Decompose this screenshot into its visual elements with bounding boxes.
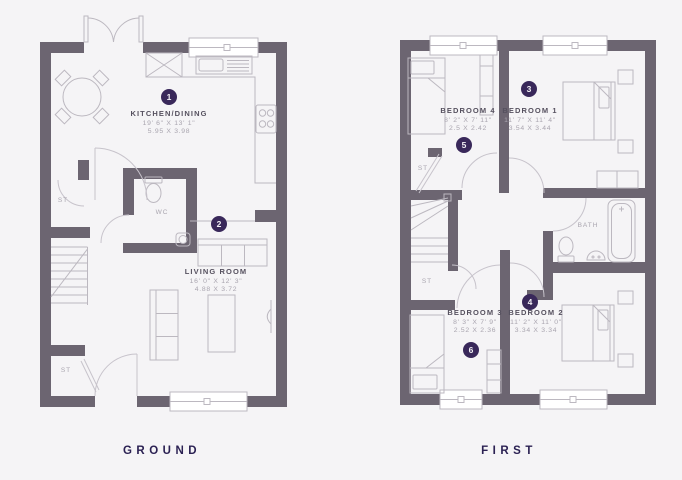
first-stairs-icon bbox=[411, 194, 451, 262]
room-number-kitchen: 1 bbox=[161, 89, 177, 105]
storage-landing-door bbox=[419, 156, 442, 193]
bedroom4-name: BEDROOM 4 bbox=[398, 106, 538, 115]
french-doors-icon bbox=[84, 16, 143, 42]
first-floor-title: FIRST bbox=[409, 445, 609, 457]
wc-door bbox=[101, 215, 129, 243]
storage-entry-door bbox=[81, 361, 96, 392]
room-number-bedroom1: 3 bbox=[521, 81, 537, 97]
storage-entry-label: ST bbox=[44, 367, 88, 374]
bedroom1-door bbox=[509, 158, 544, 193]
room-number-living: 2 bbox=[211, 216, 227, 232]
wc-label: WC bbox=[140, 209, 184, 216]
bedroom3-name: BEDROOM 3 bbox=[405, 308, 545, 317]
storage-landing-label: ST bbox=[401, 165, 445, 172]
living-room-metric: 4.88 X 3.72 bbox=[146, 286, 286, 293]
sofa-icon bbox=[198, 239, 267, 266]
first-floor-plan bbox=[398, 8, 660, 416]
hob-icon bbox=[256, 105, 276, 133]
wardrobe-icon bbox=[487, 350, 501, 393]
bedside-table-icon bbox=[618, 140, 633, 153]
coffee-table-icon bbox=[208, 295, 235, 352]
bath-label: BATH bbox=[566, 222, 610, 229]
bedroom4-door bbox=[462, 153, 497, 188]
storage-stairs-label: ST bbox=[405, 278, 449, 285]
stairs-icon bbox=[51, 247, 88, 305]
bedroom3-metric: 2.52 X 2.36 bbox=[405, 327, 545, 334]
toilet-icon bbox=[559, 237, 573, 255]
bedroom3-imperial: 8' 3" X 7' 9" bbox=[405, 319, 545, 326]
storage-hall-label: ST bbox=[41, 197, 85, 204]
kitchen-dining-name: KITCHEN/DINING bbox=[99, 109, 239, 118]
bedside-table-icon bbox=[618, 70, 633, 84]
ground-floor-title: GROUND bbox=[62, 445, 262, 457]
bedroom3-label: BEDROOM 3 8' 3" X 7' 9" 2.52 X 2.36 bbox=[405, 308, 545, 334]
bedside-table-icon bbox=[618, 291, 633, 304]
living-room-imperial: 16' 0" X 12' 3" bbox=[146, 278, 286, 285]
bedroom3-door bbox=[457, 265, 500, 308]
living-furniture bbox=[150, 239, 271, 360]
bedside-table-icon bbox=[618, 354, 633, 367]
bedroom4-imperial: 8' 2" X 7' 11" bbox=[398, 117, 538, 124]
living-room-name: LIVING ROOM bbox=[146, 267, 286, 276]
kitchen-dining-metric: 5.95 X 3.98 bbox=[99, 128, 239, 135]
floorplan-canvas: 1 KITCHEN/DINING 19' 6" X 13' 1" 5.95 X … bbox=[0, 0, 682, 480]
bath-fixtures bbox=[558, 200, 635, 262]
room-number-bedroom4: 5 bbox=[456, 137, 472, 153]
bedroom4-metric: 2.5 X 2.42 bbox=[398, 125, 538, 132]
basin-icon bbox=[587, 251, 605, 260]
room-number-bedroom3: 6 bbox=[463, 342, 479, 358]
bedroom4-label: BEDROOM 4 8' 2" X 7' 11" 2.5 X 2.42 bbox=[398, 106, 538, 132]
living-room-label: LIVING ROOM 16' 0" X 12' 3" 4.88 X 3.72 bbox=[146, 267, 286, 293]
kitchen-dining-imperial: 19' 6" X 13' 1" bbox=[99, 120, 239, 127]
sofa-icon bbox=[150, 290, 178, 360]
kitchen-dining-label: KITCHEN/DINING 19' 6" X 13' 1" 5.95 X 3.… bbox=[99, 109, 239, 135]
